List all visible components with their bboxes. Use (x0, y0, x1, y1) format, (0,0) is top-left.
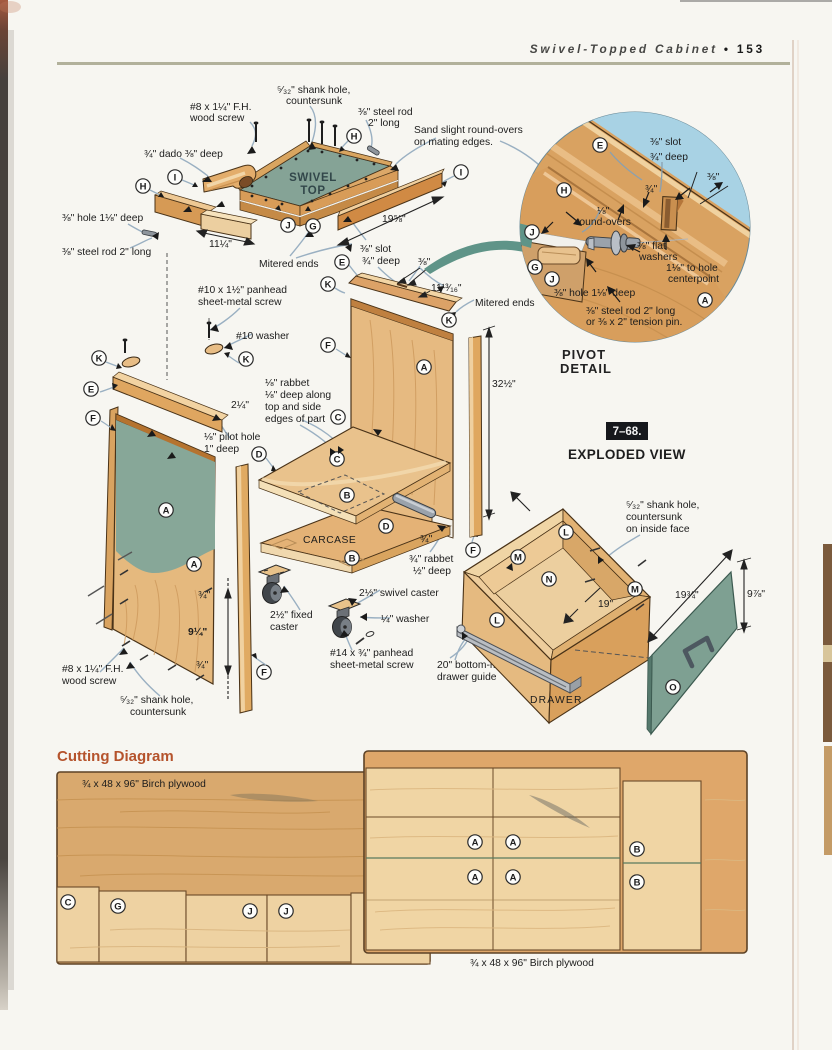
svg-text:⅜" steel rod 2" long: ⅜" steel rod 2" long (62, 247, 151, 258)
svg-text:2½" fixed: 2½" fixed (270, 610, 313, 621)
svg-text:A: A (702, 296, 709, 307)
svg-text:K: K (446, 316, 453, 327)
svg-text:E: E (88, 385, 94, 396)
svg-text:countersunk: countersunk (130, 707, 187, 718)
svg-text:⁵⁄₃₂" shank hole,: ⁵⁄₃₂" shank hole, (626, 500, 699, 511)
svg-text:F: F (261, 668, 267, 679)
svg-text:⅜" steel rod 2" long: ⅜" steel rod 2" long (586, 306, 675, 317)
svg-text:11¹³⁄₁₆": 11¹³⁄₁₆" (431, 283, 462, 294)
svg-text:C: C (335, 413, 342, 424)
svg-text:F: F (325, 341, 331, 352)
svg-text:⅜" steel rod: ⅜" steel rod (358, 107, 413, 118)
svg-text:wood screw: wood screw (189, 113, 245, 124)
svg-text:¾": ¾" (196, 660, 209, 671)
svg-text:A: A (510, 873, 517, 884)
svg-text:⅛" deep along: ⅛" deep along (265, 390, 331, 401)
svg-text:⅛": ⅛" (597, 206, 610, 217)
svg-text:2¼": 2¼" (231, 399, 249, 411)
svg-text:L: L (563, 528, 569, 539)
svg-text:A: A (421, 363, 428, 374)
svg-text:EXPLODED VIEW: EXPLODED VIEW (568, 447, 686, 462)
svg-text:¾" deep: ¾" deep (650, 152, 688, 163)
svg-text:drawer guide: drawer guide (437, 672, 497, 683)
svg-text:DRAWER: DRAWER (530, 695, 583, 706)
svg-text:SWIVEL: SWIVEL (289, 172, 337, 184)
svg-text:1⅛" to hole: 1⅛" to hole (666, 263, 718, 274)
svg-text:K: K (325, 280, 332, 291)
svg-text:F: F (90, 414, 96, 425)
svg-text:A: A (472, 838, 479, 849)
svg-text:⅜" slot: ⅜" slot (360, 244, 391, 255)
svg-text:Mitered ends: Mitered ends (259, 259, 319, 270)
svg-text:edges of part: edges of part (265, 414, 325, 425)
svg-text:K: K (243, 355, 250, 366)
svg-text:top and side: top and side (265, 402, 321, 413)
svg-text:or ⅜ x 2" tension pin.: or ⅜ x 2" tension pin. (586, 317, 682, 328)
svg-text:G: G (114, 902, 121, 913)
svg-text:11¼": 11¼" (209, 238, 232, 250)
svg-text:N: N (546, 575, 553, 586)
svg-text:⅜": ⅜" (707, 172, 720, 183)
svg-text:A: A (510, 838, 517, 849)
svg-text:D: D (383, 522, 390, 533)
svg-text:32½": 32½" (492, 379, 516, 390)
svg-text:Sand slight round-overs: Sand slight round-overs (414, 125, 523, 136)
svg-text:countersunk: countersunk (626, 512, 683, 523)
svg-text:19⅝": 19⅝" (382, 214, 406, 225)
svg-text:¾": ¾" (645, 184, 658, 195)
svg-text:¾ x 48 x 96" Birch plywood: ¾ x 48 x 96" Birch plywood (470, 958, 594, 969)
svg-text:⅛" pilot hole: ⅛" pilot hole (204, 432, 261, 443)
svg-text:¾" rabbet: ¾" rabbet (409, 554, 453, 565)
svg-text:M: M (631, 585, 639, 596)
svg-text:#14 x ¾" panhead: #14 x ¾" panhead (330, 648, 414, 659)
svg-text:H: H (351, 132, 358, 143)
svg-text:Mitered ends: Mitered ends (475, 298, 535, 309)
svg-text:I: I (174, 173, 177, 184)
svg-text:#8 x 1¼" F.H.: #8 x 1¼" F.H. (62, 663, 123, 675)
svg-text:¼" washer: ¼" washer (381, 613, 430, 625)
svg-text:¾" dado ⅜" deep: ¾" dado ⅜" deep (144, 149, 223, 160)
svg-text:sheet-metal screw: sheet-metal screw (198, 297, 282, 308)
svg-text:K: K (96, 354, 103, 365)
svg-text:½" deep: ½" deep (413, 566, 451, 577)
svg-text:L: L (494, 616, 500, 627)
svg-text:O: O (669, 683, 676, 694)
svg-text:⁵⁄₃₂" shank hole,: ⁵⁄₃₂" shank hole, (277, 85, 350, 96)
svg-text:¾": ¾" (420, 534, 433, 545)
svg-text:#10 washer: #10 washer (236, 331, 290, 342)
svg-text:B: B (634, 878, 641, 889)
svg-text:¾" deep: ¾" deep (362, 256, 400, 267)
svg-text:J: J (549, 275, 554, 286)
svg-text:⅜" hole 1⅛" deep: ⅜" hole 1⅛" deep (62, 213, 143, 224)
svg-text:J: J (247, 907, 252, 918)
svg-text:DETAIL: DETAIL (560, 361, 612, 376)
svg-text:PIVOT: PIVOT (562, 347, 606, 362)
svg-text:M: M (514, 553, 522, 564)
svg-text:⅛" rabbet: ⅛" rabbet (265, 378, 309, 389)
svg-text:C: C (65, 898, 72, 909)
svg-text:G: G (531, 263, 538, 274)
svg-text:E: E (339, 258, 345, 269)
svg-text:#10 x 1½" panhead: #10 x 1½" panhead (198, 285, 287, 296)
svg-text:A: A (472, 873, 479, 884)
svg-text:H: H (561, 186, 568, 197)
svg-text:on mating edges.: on mating edges. (414, 137, 493, 148)
svg-text:#8 x 1¼" F.H.: #8 x 1¼" F.H. (190, 101, 251, 113)
svg-text:1" deep: 1" deep (204, 444, 239, 455)
svg-text:Swivel-Topped Cabinet • 153: Swivel-Topped Cabinet • 153 (530, 42, 765, 56)
svg-text:B: B (634, 845, 641, 856)
svg-text:J: J (285, 221, 290, 232)
svg-text:round-overs: round-overs (576, 217, 631, 228)
svg-text:9⅞": 9⅞" (747, 589, 765, 600)
svg-text:2½" swivel caster: 2½" swivel caster (359, 588, 439, 599)
svg-text:countersunk: countersunk (286, 96, 343, 107)
svg-text:on inside face: on inside face (626, 524, 690, 535)
svg-text:7–68.: 7–68. (613, 426, 642, 438)
svg-text:wood screw: wood screw (61, 676, 117, 687)
svg-text:H: H (140, 182, 147, 193)
svg-text:sheet-metal screw: sheet-metal screw (330, 660, 414, 671)
svg-text:2" long: 2" long (368, 118, 400, 129)
svg-text:19": 19" (598, 599, 613, 610)
svg-text:19¾": 19¾" (675, 590, 699, 601)
svg-text:washers: washers (638, 252, 677, 263)
svg-text:C: C (334, 455, 341, 466)
svg-text:F: F (470, 546, 476, 557)
svg-text:centerpoint: centerpoint (668, 274, 719, 285)
svg-text:⅜" slot: ⅜" slot (650, 137, 681, 148)
svg-text:A: A (191, 560, 198, 571)
svg-text:CARCASE: CARCASE (303, 535, 356, 546)
svg-text:⅜" hole 1⅛" deep: ⅜" hole 1⅛" deep (554, 288, 635, 299)
svg-text:9¼": 9¼" (188, 627, 207, 638)
svg-text:TOP: TOP (300, 185, 325, 197)
svg-text:caster: caster (270, 622, 299, 633)
svg-text:⅜" flat: ⅜" flat (637, 241, 666, 252)
svg-text:Cutting Diagram: Cutting Diagram (57, 748, 174, 765)
svg-text:J: J (283, 907, 288, 918)
svg-text:G: G (309, 222, 316, 233)
svg-text:A: A (163, 506, 170, 517)
svg-text:B: B (344, 491, 351, 502)
svg-text:I: I (460, 168, 463, 179)
svg-text:⁵⁄₃₂" shank hole,: ⁵⁄₃₂" shank hole, (120, 695, 193, 706)
svg-text:E: E (597, 141, 603, 152)
svg-text:¾": ¾" (198, 590, 211, 601)
svg-text:D: D (256, 450, 263, 461)
svg-text:¾ x 48 x 96" Birch plywood: ¾ x 48 x 96" Birch plywood (82, 779, 206, 790)
svg-text:B: B (349, 554, 356, 565)
svg-text:J: J (529, 228, 534, 239)
